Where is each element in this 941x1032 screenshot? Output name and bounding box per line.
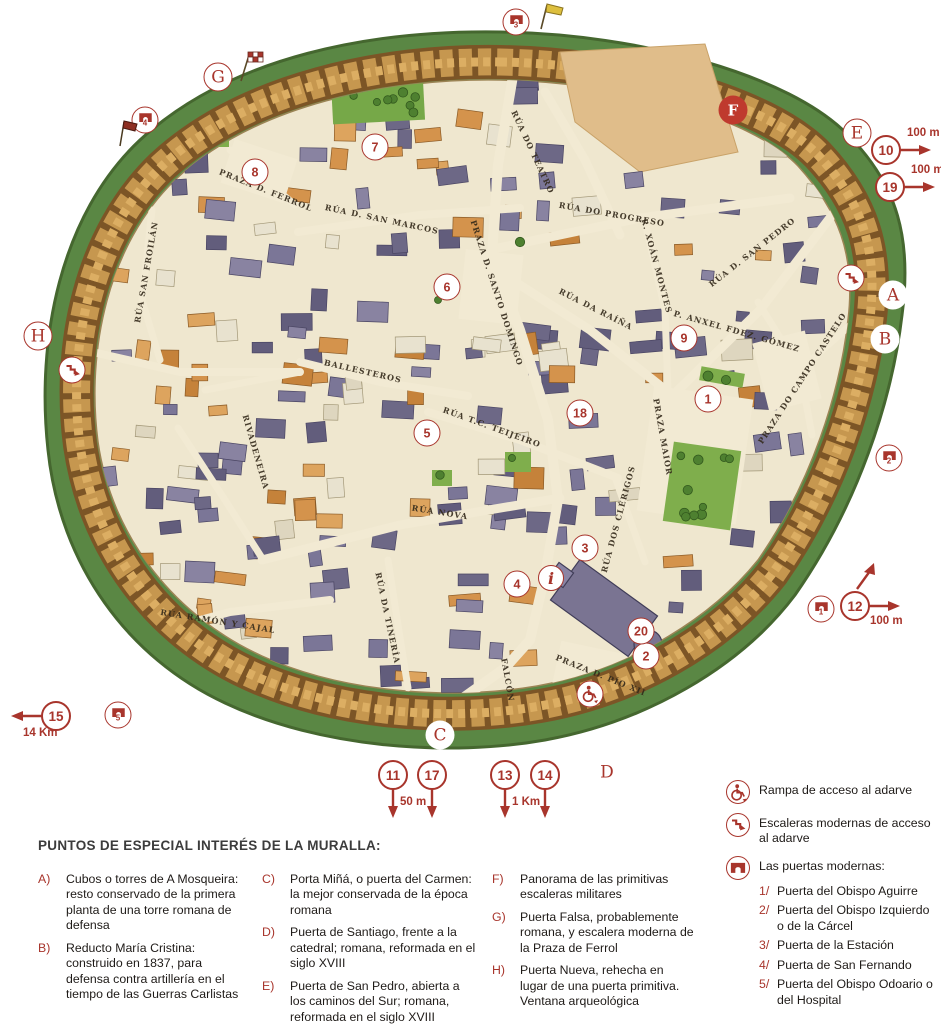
stairs-access-marker [838, 265, 865, 292]
scale-label: 100 m [911, 164, 941, 176]
marker-number-12: 12100 m [840, 591, 870, 621]
marker-number-19: 19100 m [875, 172, 905, 202]
street-label: Rúa da Raíña [557, 286, 634, 332]
legend-item-text: Panorama de las primitivas escaleras mil… [520, 872, 694, 903]
modern-gate-item-2: 2/Puerta del Obispo Izquierdo o de la Cá… [759, 903, 938, 934]
legend-item-B: B)Reducto María Cristina: construido en … [38, 941, 244, 1003]
marker-number-8: 8 [242, 159, 269, 186]
gate-item-number: 5/ [759, 977, 777, 1008]
marker-letter-C: C [426, 721, 455, 750]
wheelchair-ramp-marker [577, 681, 604, 708]
stairs-icon [726, 813, 750, 837]
modern-gate-marker-3: 3 [503, 9, 530, 36]
gate-item-text: Puerta del Obispo Izquierdo o de la Cárc… [777, 903, 938, 934]
marker-number-6: 6 [434, 274, 461, 301]
street-label: Rúa Ramón y Cajal [160, 607, 277, 635]
legend-title: PUNTOS DE ESPECIAL INTERÉS DE LA MURALLA… [38, 838, 381, 853]
city-map: GEHABCDF1234567891820i1234510100 m19100 … [0, 0, 941, 812]
modern-gates-list: 1/Puerta del Obispo Aguirre2/Puerta del … [759, 884, 938, 1008]
marker-number-13: 131 Km [490, 760, 520, 790]
gate-item-number: 1/ [759, 884, 777, 899]
street-label: Rúa do Teatro [509, 109, 556, 195]
marker-number-15: 1514 Km [41, 701, 71, 731]
legend-item-text: Puerta de Santiago, frente a la catedral… [290, 925, 478, 971]
legend-column-3: F)Panorama de las primitivas escaleras m… [492, 872, 694, 1017]
street-label: Rúa dos Clérigos [599, 464, 637, 573]
legend-item-G: G)Puerta Falsa, probablemente romana, y … [492, 910, 694, 956]
legend-item-text: Puerta de San Pedro, abierta a los camin… [290, 979, 478, 1025]
legend-item-A: A)Cubos o torres de A Mosqueira: resto c… [38, 872, 244, 934]
marker-letter-F: F [719, 96, 748, 125]
legend-item-H: H)Puerta Nueva, rehecha en lugar de una … [492, 963, 694, 1009]
map-overlays: GEHABCDF1234567891820i1234510100 m19100 … [0, 0, 941, 812]
legend-item-key: C) [262, 872, 290, 918]
marker-number-9: 9 [671, 325, 698, 352]
street-label: Praza d. Santo Domingo [469, 219, 526, 367]
street-label: Rúa T.C. Teijeiro [442, 405, 543, 450]
gate-item-text: Puerta del Obispo Aguirre [777, 884, 938, 899]
legend-item-key: D) [262, 925, 290, 971]
legend-item-F: F)Panorama de las primitivas escaleras m… [492, 872, 694, 903]
marker-number-17: 17 [417, 760, 447, 790]
gate-item-number: 2/ [759, 903, 777, 934]
street-label: Ballesteros [323, 357, 403, 385]
legend-column-2: C)Porta Miñá, o puerta del Carmen: la me… [262, 872, 478, 1032]
legend-gates-row: Las puertas modernas: [726, 856, 938, 880]
street-label: Rúa Nova [411, 503, 469, 522]
street-label: Rivadeneira [241, 413, 272, 490]
marker-number-1: 1 [695, 386, 722, 413]
legend-item-key: B) [38, 941, 66, 1003]
scale-label: 14 Km [23, 727, 58, 739]
modern-gate-marker-5: 5 [105, 702, 132, 729]
marker-letter-H: H [24, 322, 53, 351]
flag-checkered-icon [235, 49, 265, 83]
legend-item-text: Reducto María Cristina: construido en 18… [66, 941, 244, 1003]
marker-number-4: 4 [504, 571, 531, 598]
marker-number-10: 10100 m [871, 135, 901, 165]
scale-label: 1 Km [512, 796, 540, 808]
gate-item-text: Puerta de San Fernando [777, 958, 938, 973]
legend-stairs-row: Escaleras modernas de acceso al adarve [726, 813, 938, 847]
modern-gate-marker-2: 2 [876, 445, 903, 472]
gate-item-text: Puerta del Obispo Odoario o del Hospital [777, 977, 938, 1008]
legend-column-1: A)Cubos o torres de A Mosqueira: resto c… [38, 872, 244, 1010]
legend-item-text: Cubos o torres de A Mosqueira: resto con… [66, 872, 244, 934]
legend-item-D: D)Puerta de Santiago, frente a la catedr… [262, 925, 478, 971]
marker-number-20: 20 [628, 618, 655, 645]
modern-gate-icon [726, 856, 750, 880]
legend-item-key: H) [492, 963, 520, 1009]
info-point-marker: i [538, 565, 564, 591]
street-label: Rúa d. San Marcos [324, 202, 440, 236]
scale-label: 100 m [870, 615, 903, 627]
street-label: Rúa d. San Pedro [707, 215, 797, 289]
legend-symbols: Rampa de acceso al adarve Escaleras mode… [726, 780, 938, 1012]
stairs-access-marker [59, 357, 86, 384]
modern-gate-marker-1: 1 [808, 596, 835, 623]
legend-item-key: F) [492, 872, 520, 903]
marker-number-18: 18 [567, 400, 594, 427]
marker-number-2: 2 [633, 643, 660, 670]
legend-item-key: G) [492, 910, 520, 956]
marker-letter-D: D [593, 758, 622, 787]
marker-letter-B: B [871, 325, 900, 354]
street-label: Rúa da Tinería [373, 571, 402, 664]
legend-item-key: E) [262, 979, 290, 1025]
modern-gate-item-3: 3/Puerta de la Estación [759, 938, 938, 953]
flag-yellow-icon [536, 1, 566, 31]
marker-letter-A: A [879, 281, 908, 310]
gate-item-number: 4/ [759, 958, 777, 973]
legend-item-key: A) [38, 872, 66, 934]
modern-gate-item-5: 5/Puerta del Obispo Odoario o del Hospit… [759, 977, 938, 1008]
marker-letter-G: G [204, 63, 233, 92]
stairs-label: Escaleras modernas de acceso al adarve [759, 813, 938, 847]
legend-item-E: E)Puerta de San Pedro, abierta a los cam… [262, 979, 478, 1025]
marker-number-3: 3 [572, 535, 599, 562]
scale-label: 100 m [907, 127, 940, 139]
street-label: Rúa San Froilán [132, 220, 160, 323]
street-label: Praza do Campo Castelo [756, 310, 849, 445]
legend-item-text: Puerta Falsa, probablemente romana, y es… [520, 910, 694, 956]
marker-number-7: 7 [362, 134, 389, 161]
modern-gate-item-4: 4/Puerta de San Fernando [759, 958, 938, 973]
legend-item-text: Porta Miñá, o puerta del Carmen: la mejo… [290, 872, 478, 918]
modern-gate-item-1: 1/Puerta del Obispo Aguirre [759, 884, 938, 899]
marker-number-14: 14 [530, 760, 560, 790]
gate-item-text: Puerta de la Estación [777, 938, 938, 953]
flag-red-icon [113, 118, 139, 148]
street-label: R. Xoán Montes [639, 217, 674, 314]
gate-item-number: 3/ [759, 938, 777, 953]
legend-item-C: C)Porta Miñá, o puerta del Carmen: la me… [262, 872, 478, 918]
marker-number-5: 5 [414, 420, 441, 447]
street-label: Praza Maior [651, 398, 674, 477]
legend-item-text: Puerta Nueva, rehecha en lugar de una pu… [520, 963, 694, 1009]
marker-letter-E: E [843, 119, 872, 148]
marker-number-11: 1150 m [378, 760, 408, 790]
street-label: Falcón [499, 657, 517, 702]
gates-title: Las puertas modernas: [759, 856, 885, 874]
scale-label: 50 m [400, 796, 426, 808]
